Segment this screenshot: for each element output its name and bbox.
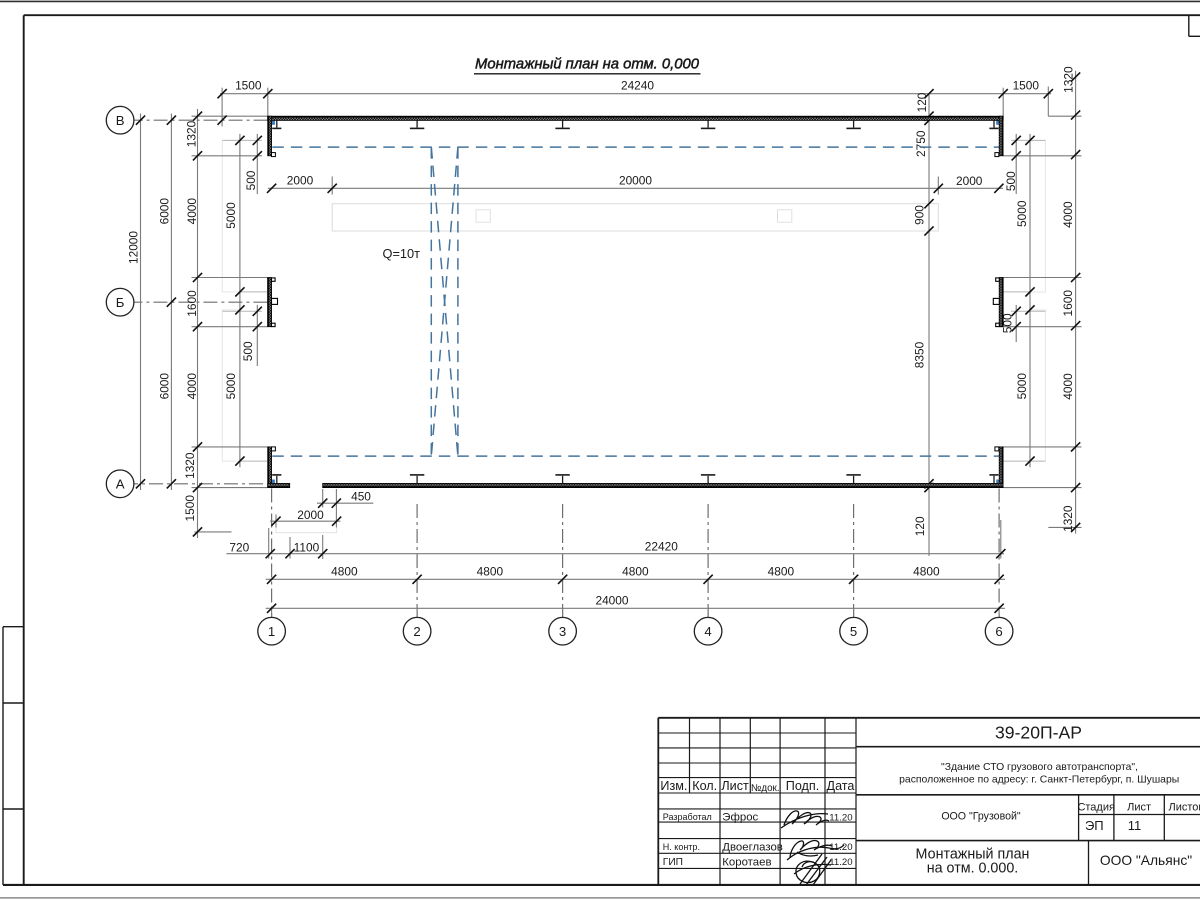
svg-text:4800: 4800 (913, 565, 940, 579)
svg-text:12000: 12000 (127, 231, 141, 264)
svg-text:5000: 5000 (224, 202, 238, 229)
svg-text:4000: 4000 (1061, 373, 1075, 400)
svg-text:3: 3 (559, 624, 566, 639)
svg-text:6000: 6000 (158, 373, 172, 400)
svg-text:900: 900 (913, 205, 927, 225)
svg-text:2750: 2750 (914, 130, 928, 157)
svg-text:4: 4 (704, 624, 711, 639)
svg-text:ООО "Альянс": ООО "Альянс" (1100, 853, 1192, 868)
svg-text:А: А (116, 477, 125, 492)
svg-text:500: 500 (244, 170, 258, 190)
svg-text:1320: 1320 (1061, 66, 1075, 93)
svg-text:1500: 1500 (1013, 78, 1040, 92)
svg-text:Q=10т: Q=10т (383, 246, 421, 261)
svg-text:Кол.: Кол. (692, 779, 717, 793)
svg-text:1600: 1600 (1061, 290, 1075, 317)
svg-text:2: 2 (413, 624, 420, 639)
svg-text:1: 1 (268, 624, 275, 639)
svg-text:Разработал: Разработал (663, 812, 712, 822)
svg-text:4000: 4000 (185, 373, 199, 400)
svg-text:2000: 2000 (956, 174, 983, 188)
svg-text:11.20: 11.20 (829, 857, 852, 868)
svg-text:120: 120 (913, 516, 927, 536)
svg-text:450: 450 (351, 489, 371, 503)
svg-text:11.20: 11.20 (829, 812, 852, 823)
svg-text:20000: 20000 (619, 174, 652, 188)
svg-text:Б: Б (116, 295, 125, 310)
svg-text:Монтажный план на отм. 0,000: Монтажный план на отм. 0,000 (475, 57, 700, 73)
svg-text:Дата: Дата (827, 779, 855, 793)
svg-text:2000: 2000 (287, 174, 314, 188)
svg-text:24000: 24000 (595, 594, 628, 608)
svg-text:1600: 1600 (185, 290, 199, 317)
svg-text:Подп.: Подп. (786, 779, 819, 793)
svg-text:4800: 4800 (622, 565, 649, 579)
svg-text:"Здание СТО грузового автотран: "Здание СТО грузового автотранспорта", (941, 762, 1138, 773)
svg-text:5000: 5000 (1015, 200, 1029, 227)
svg-text:6000: 6000 (158, 198, 172, 225)
svg-text:6: 6 (995, 624, 1002, 639)
svg-text:Лист: Лист (721, 779, 749, 793)
svg-text:В: В (116, 113, 125, 128)
svg-text:Лист: Лист (1127, 801, 1151, 813)
svg-text:1500: 1500 (183, 495, 197, 522)
svg-text:8350: 8350 (913, 341, 927, 368)
svg-text:1320: 1320 (1061, 505, 1075, 532)
svg-text:11: 11 (1128, 818, 1142, 833)
svg-text:4800: 4800 (331, 565, 358, 579)
svg-text:5: 5 (850, 624, 857, 639)
svg-text:Изм.: Изм. (660, 779, 687, 793)
svg-text:Двоеглазов: Двоеглазов (722, 841, 783, 853)
svg-text:ГИП: ГИП (663, 857, 683, 868)
svg-text:Эфрос: Эфрос (722, 812, 758, 824)
svg-text:1320: 1320 (184, 120, 198, 147)
svg-text:ЭП: ЭП (1085, 818, 1104, 833)
svg-text:на отм. 0.000.: на отм. 0.000. (927, 860, 1019, 876)
svg-text:4000: 4000 (1061, 201, 1075, 228)
svg-text:4800: 4800 (768, 565, 795, 579)
svg-text:500: 500 (1004, 171, 1018, 191)
svg-text:4000: 4000 (185, 198, 199, 225)
svg-text:Н. контр.: Н. контр. (663, 842, 700, 852)
svg-text:24240: 24240 (621, 78, 654, 92)
svg-text:Коротаев: Коротаев (722, 856, 771, 868)
svg-text:2000: 2000 (297, 508, 324, 522)
svg-text:1100: 1100 (294, 541, 320, 555)
svg-text:расположенное по адресу: г. Са: расположенное по адресу: г. Санкт-Петерб… (899, 773, 1179, 785)
svg-text:4800: 4800 (477, 565, 504, 579)
svg-text:39-20П-АР: 39-20П-АР (995, 723, 1082, 743)
svg-text:№док.: №док. (751, 783, 780, 794)
svg-text:ООО "Грузовой": ООО "Грузовой" (941, 811, 1021, 823)
svg-text:720: 720 (229, 541, 249, 555)
svg-text:500: 500 (241, 341, 255, 361)
svg-text:5000: 5000 (224, 373, 238, 400)
svg-text:5000: 5000 (1015, 373, 1029, 400)
svg-text:120: 120 (915, 92, 929, 112)
svg-text:Листов: Листов (1169, 801, 1200, 813)
svg-text:1500: 1500 (235, 78, 262, 92)
svg-text:22420: 22420 (645, 540, 678, 554)
svg-text:Стадия: Стадия (1077, 801, 1115, 813)
svg-text:1320: 1320 (183, 452, 197, 479)
